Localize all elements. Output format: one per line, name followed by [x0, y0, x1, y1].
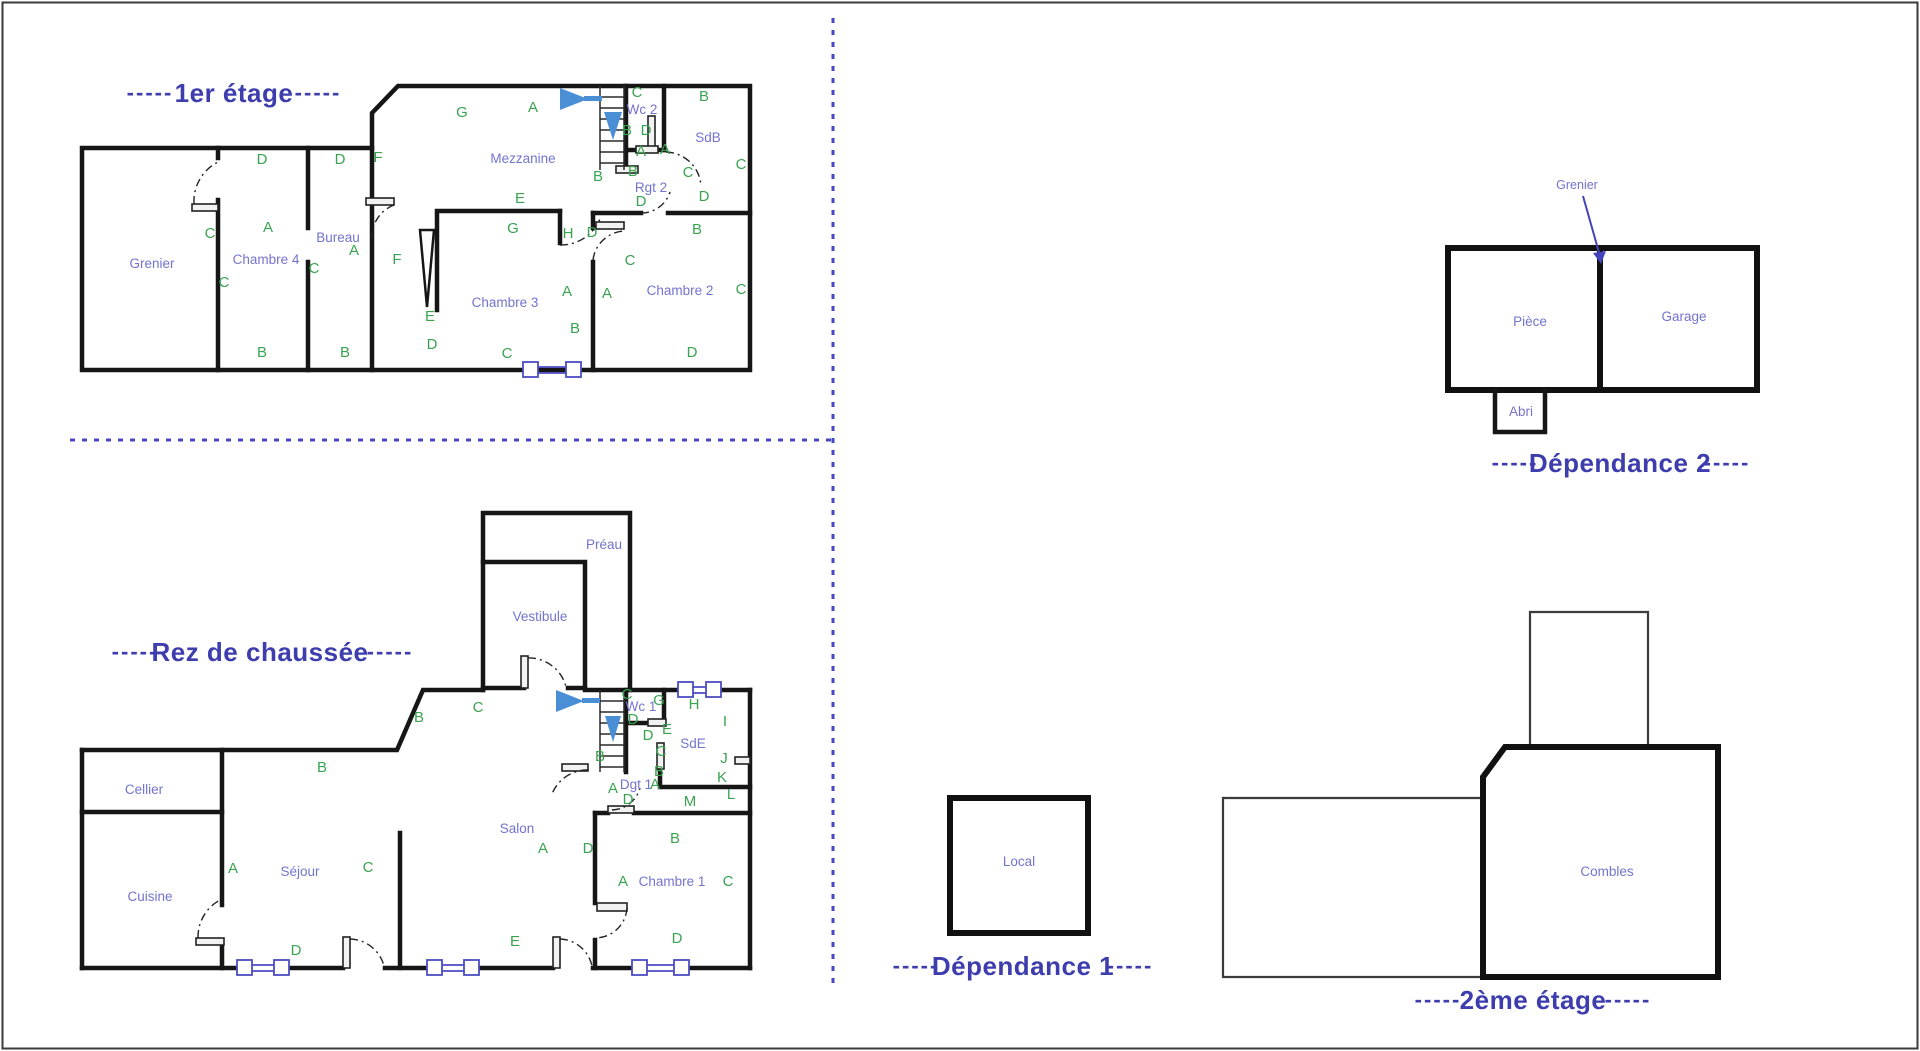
wall-letter: C: [219, 274, 230, 291]
floor-plan-page: ----- 1er étage -----: [0, 0, 1920, 1051]
plan-title-1er-etage: ----- 1er étage -----: [127, 78, 342, 108]
wall-letter: A: [228, 860, 238, 877]
wall-letter: D: [628, 711, 639, 728]
room-labels-dep1: Local: [1003, 854, 1035, 869]
room-label: Cuisine: [127, 889, 172, 904]
wall-letter: F: [392, 251, 401, 268]
wall-letter: B: [622, 122, 632, 139]
room-label: Grenier: [129, 256, 175, 271]
page-title: Dépendance 1: [932, 951, 1114, 981]
plan-title-dep1: ----- Dépendance 1 -----: [893, 951, 1154, 981]
wall-letter: D: [257, 151, 268, 168]
wall-letter: D: [587, 224, 598, 241]
walls-dependance-2: [1448, 248, 1757, 432]
wall-letter: F: [373, 149, 382, 166]
wall-letter: J: [720, 750, 728, 767]
plan-2eme-etage: Combles ----- 2ème étage -----: [1223, 612, 1718, 1015]
wall-letter: A: [602, 285, 612, 302]
wall-letter: D: [636, 193, 647, 210]
title-dashes: -----: [1107, 953, 1154, 978]
room-label: Cellier: [125, 782, 164, 797]
room-label: Chambre 4: [233, 252, 300, 267]
chimney-outline: [1530, 612, 1648, 747]
wall-letter: B: [699, 88, 709, 105]
wall-letter: C: [632, 84, 643, 101]
wall-letter: M: [684, 793, 697, 810]
wall-letter: A: [562, 283, 572, 300]
wall-letter: A: [650, 776, 660, 793]
wall-letters-rdc: BBCACDADECGHDEDCIJKLBBAADMBACD: [228, 686, 735, 959]
plan-title-2eme: ----- 2ème étage -----: [1415, 985, 1652, 1015]
plan-dependance-1: Local ----- Dépendance 1 -----: [893, 798, 1154, 981]
room-label: Abri: [1509, 404, 1533, 419]
page-border: [3, 3, 1918, 1049]
title-dashes: -----: [367, 639, 414, 664]
wall-letter: B: [692, 221, 702, 238]
room-label: Chambre 3: [472, 295, 539, 310]
wall-letter: B: [628, 163, 638, 180]
wall-letter: E: [510, 933, 520, 950]
stair-up-arrow-icon: [556, 690, 584, 712]
page-title: Rez de chaussée: [151, 637, 368, 667]
title-dashes: -----: [1415, 987, 1462, 1012]
walls-combles: [1483, 747, 1718, 977]
wall-letter: E: [425, 308, 435, 325]
stair-down-arrow-icon: [605, 716, 621, 742]
wall-letter: C: [723, 873, 734, 890]
room-label: SdB: [695, 130, 721, 145]
wall-letter: A: [349, 242, 359, 259]
room-label: Combles: [1580, 864, 1634, 879]
plan-rez-de-chaussee: ----- Rez de chaussée -----: [82, 513, 750, 975]
plan-1er-etage: ----- 1er étage -----: [82, 78, 750, 377]
room-label: Wc 2: [627, 102, 658, 117]
page-title: 1er étage: [175, 78, 294, 108]
wall-letter: H: [563, 225, 574, 242]
page-title: Dépendance 2: [1529, 448, 1711, 478]
wall-letter: A: [608, 780, 618, 797]
wall-letter: D: [623, 791, 634, 808]
room-label: Dgt 1: [620, 777, 652, 792]
wall-letter: C: [473, 699, 484, 716]
wall-letter: B: [670, 830, 680, 847]
wall-letter: A: [538, 840, 548, 857]
room-label: Pièce: [1513, 314, 1547, 329]
wall-letter: D: [643, 727, 654, 744]
room-label: Vestibule: [513, 609, 568, 624]
wall-letter: C: [309, 260, 320, 277]
wall-letter: B: [570, 320, 580, 337]
wall-letter: H: [689, 696, 700, 713]
wall-letter: C: [363, 859, 374, 876]
room-labels-dep2: PièceGarageAbri: [1509, 309, 1707, 419]
plan-title-rdc: ----- Rez de chaussée -----: [112, 637, 414, 667]
wall-letter: B: [257, 344, 267, 361]
wall-letter: C: [656, 743, 667, 760]
wall-letter: B: [593, 168, 603, 185]
wall-letter: D: [291, 942, 302, 959]
wall-letter: A: [636, 143, 646, 160]
wall-letter: E: [515, 190, 525, 207]
title-dashes: -----: [1605, 987, 1652, 1012]
wall-letter: K: [717, 769, 727, 786]
wall-letter: D: [335, 151, 346, 168]
wall-letter: A: [660, 141, 670, 158]
wall-letter: B: [414, 709, 424, 726]
wall-letter: C: [502, 345, 513, 362]
room-label: Séjour: [280, 864, 320, 879]
wall-letter: C: [736, 156, 747, 173]
roof-left-outline: [1223, 798, 1483, 977]
wall-letter: I: [723, 713, 727, 730]
wall-letter: D: [672, 930, 683, 947]
stair-down-arrow-icon: [604, 112, 622, 140]
wall-letter: D: [641, 122, 652, 139]
wall-letter: L: [727, 786, 735, 803]
wall-letter: C: [683, 164, 694, 181]
wall-letter: D: [427, 336, 438, 353]
title-dashes: -----: [295, 80, 342, 105]
room-label: SdE: [680, 736, 706, 751]
wall-letter: B: [317, 759, 327, 776]
wall-letter: E: [662, 721, 672, 738]
room-label: Salon: [500, 821, 535, 836]
room-label: Garage: [1661, 309, 1706, 324]
page-title: 2ème étage: [1460, 985, 1607, 1015]
wall-letter: G: [653, 692, 665, 709]
room-label: Préau: [586, 537, 622, 552]
wall-letter: C: [625, 252, 636, 269]
stairs-rdc: [556, 690, 624, 772]
room-label: Mezzanine: [490, 151, 555, 166]
wall-letter: A: [528, 99, 538, 116]
wall-letter: B: [340, 344, 350, 361]
wall-letter: D: [699, 188, 710, 205]
wall-letter: B: [595, 748, 605, 765]
room-label: Chambre 2: [647, 283, 714, 298]
plan-dependance-2: Grenier PièceGarageAbri ----- Dépendance…: [1448, 178, 1757, 478]
floor-plan-canvas: ----- 1er étage -----: [0, 0, 1920, 1051]
grenier-annotation: [1583, 196, 1606, 264]
room-labels-2eme: Combles: [1580, 864, 1634, 879]
wall-letter: C: [736, 281, 747, 298]
annotation-labels-dep2: Grenier: [1556, 178, 1598, 192]
wall-letter: C: [205, 225, 216, 242]
annotation-label: Grenier: [1556, 178, 1598, 192]
wall-letter: A: [263, 219, 273, 236]
plan-title-dep2: ----- Dépendance 2 -----: [1492, 448, 1751, 478]
wall-letter: A: [618, 873, 628, 890]
room-label: Chambre 1: [639, 874, 706, 889]
wall-letter: D: [687, 344, 698, 361]
stairs-1er-etage: [560, 86, 624, 170]
wall-letter: G: [456, 104, 468, 121]
room-label: Local: [1003, 854, 1035, 869]
wall-letter: C: [622, 686, 633, 703]
wall-letter: G: [507, 220, 519, 237]
title-dashes: -----: [127, 80, 174, 105]
stair-up-arrow-icon: [560, 88, 588, 110]
title-dashes: -----: [1704, 450, 1751, 475]
wall-letter: D: [583, 840, 594, 857]
